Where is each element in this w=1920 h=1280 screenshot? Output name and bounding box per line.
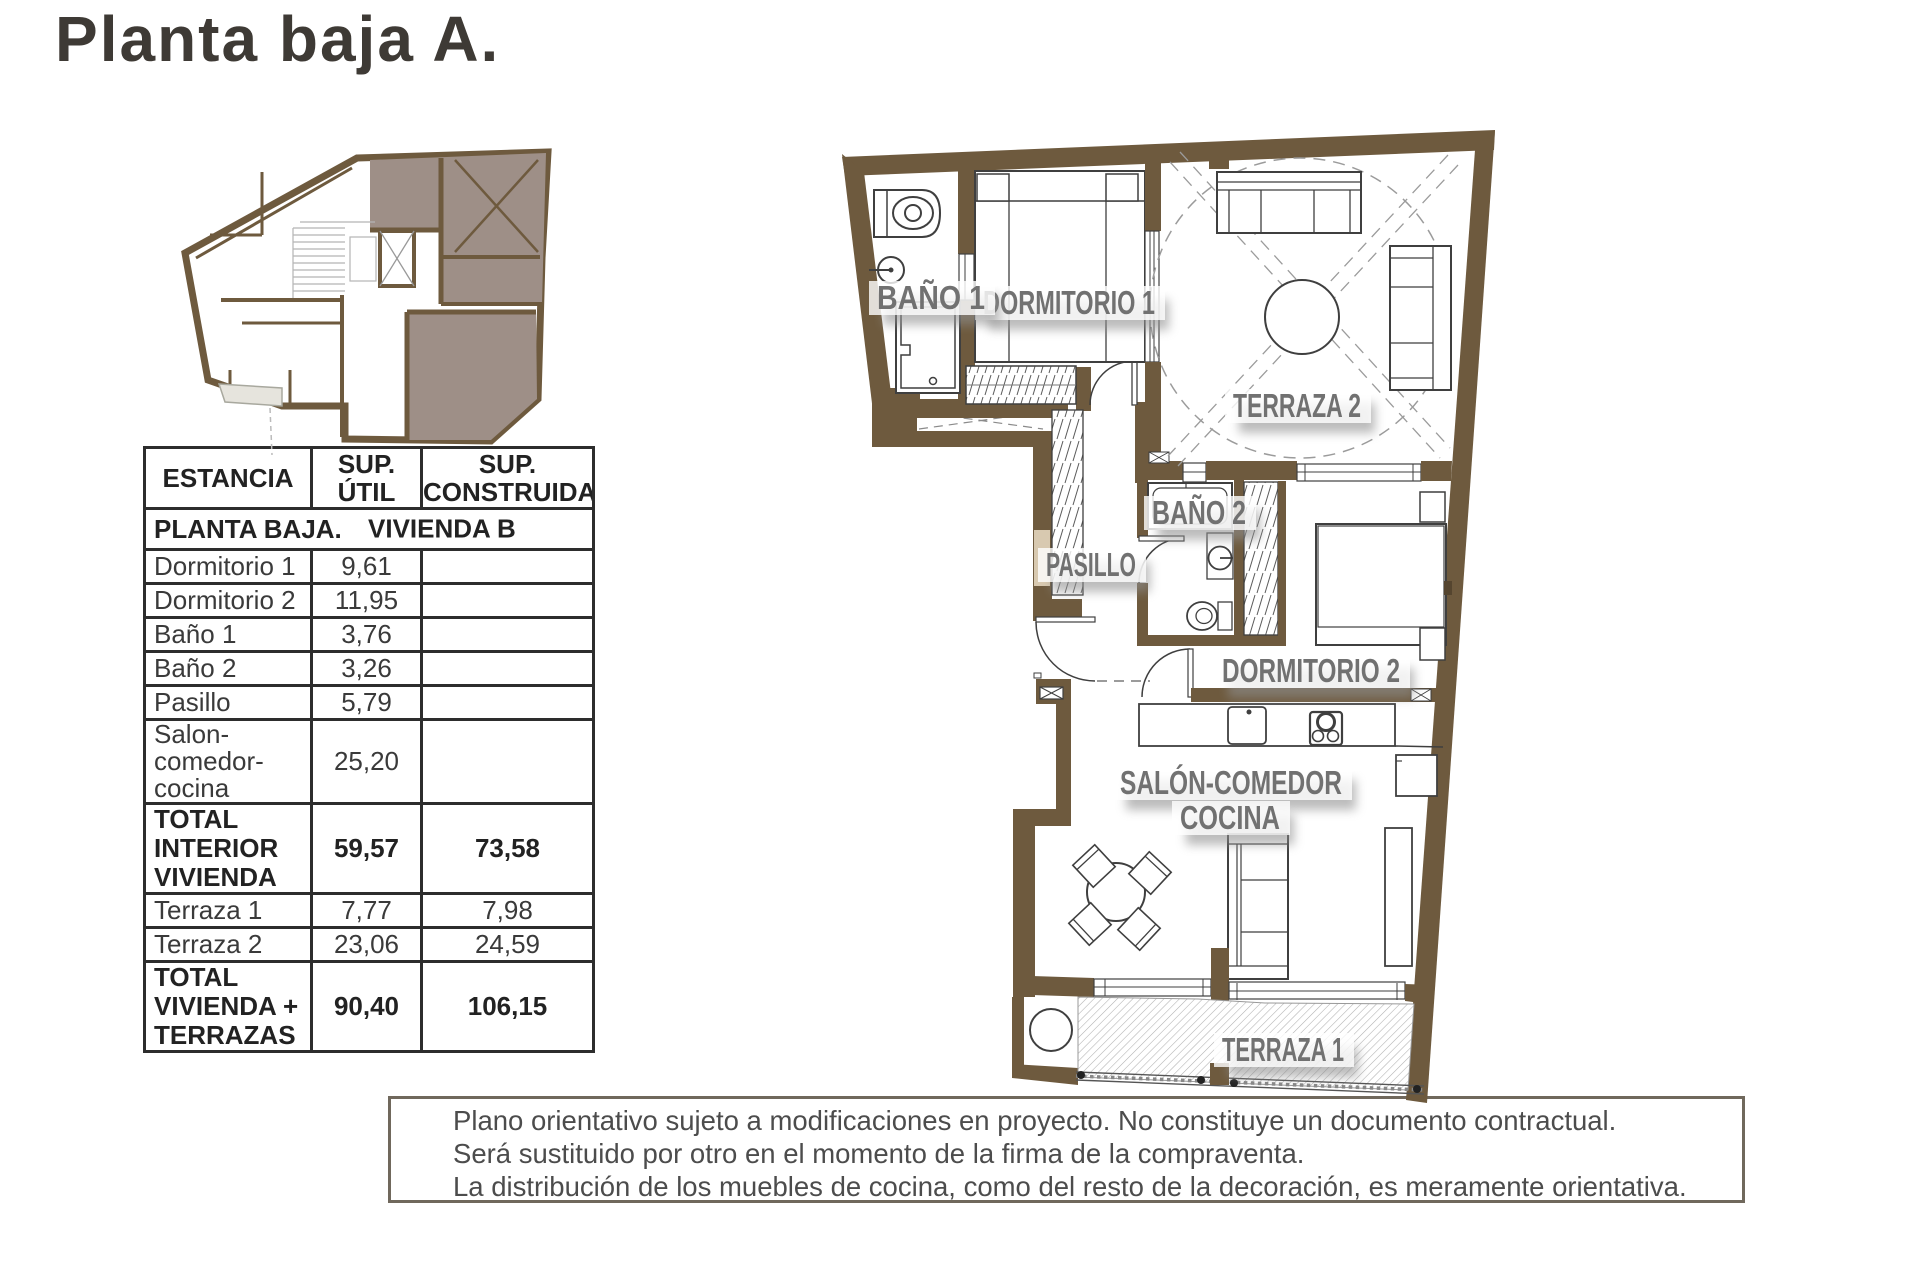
- svg-text:SALÓN-COMEDOR: SALÓN-COMEDOR: [1120, 764, 1342, 801]
- svg-text:BAÑO 2: BAÑO 2: [1152, 494, 1246, 531]
- svg-text:BAÑO 1: BAÑO 1: [877, 279, 985, 316]
- svg-text:TERRAZA 2: TERRAZA 2: [1233, 387, 1361, 424]
- svg-text:TERRAZA 1: TERRAZA 1: [1222, 1031, 1344, 1068]
- svg-text:DORMITORIO 2: DORMITORIO 2: [1222, 652, 1400, 689]
- svg-text:DORMITORIO 1: DORMITORIO 1: [983, 284, 1155, 321]
- svg-text:PASILLO: PASILLO: [1046, 546, 1136, 583]
- svg-text:COCINA: COCINA: [1180, 799, 1280, 836]
